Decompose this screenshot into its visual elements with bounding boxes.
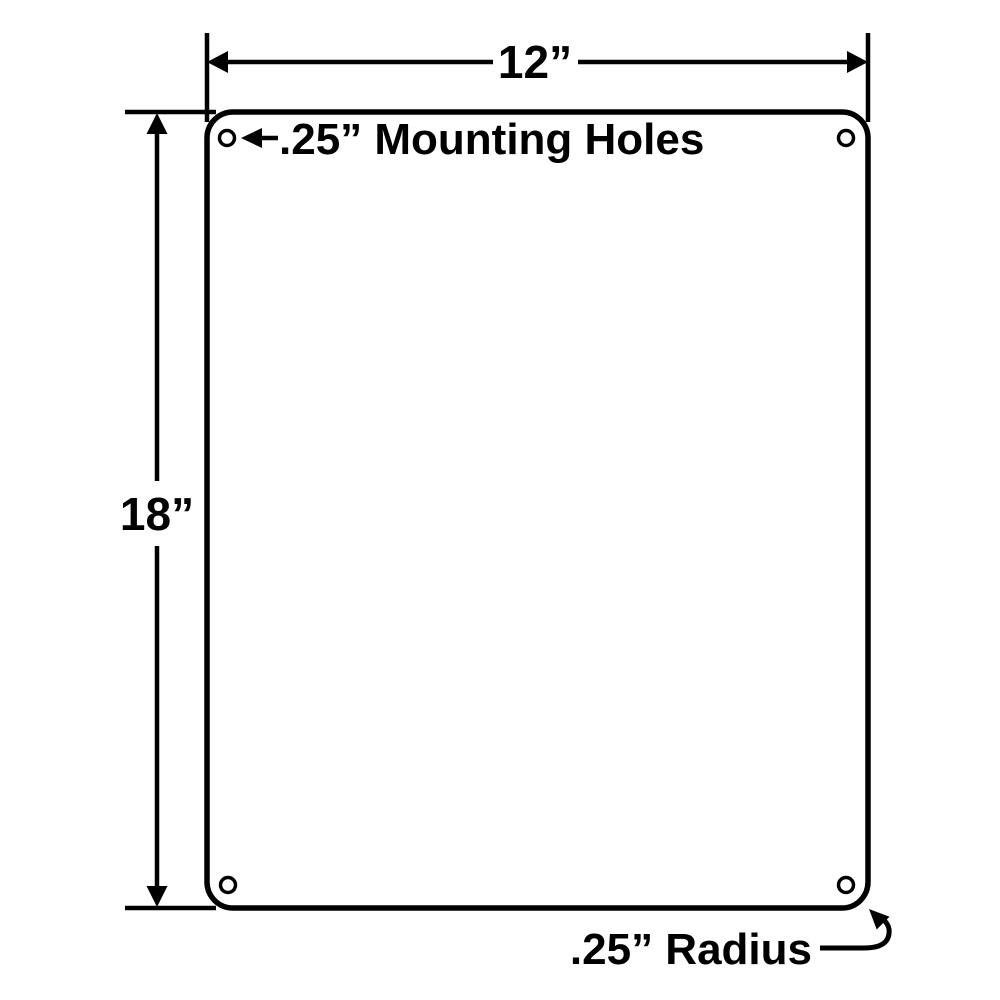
width-dimension-label: 12” [498,36,572,88]
width-dimension-arrowhead-right [847,51,868,73]
mounting-hole-top-right [839,131,854,146]
dimension-drawing-canvas: 12” 18” .25” Mounting Holes .25” Radius [0,0,1000,1000]
sign-plate-outline [207,112,868,908]
mounting-hole-bottom-left [221,878,236,893]
corner-radius-label: .25” Radius [570,925,812,974]
width-dimension-arrowhead-left [207,51,228,73]
mounting-holes-arrowhead [241,128,262,148]
mounting-holes-label: .25” Mounting Holes [279,115,704,164]
height-dimension-arrowhead-top [147,113,168,134]
height-dimension-arrowhead-bottom [147,886,168,907]
height-dimension-label: 18” [120,488,194,540]
mounting-hole-bottom-right [839,878,854,893]
diagram-stage: 12” 18” .25” Mounting Holes .25” Radius [0,0,1000,1000]
mounting-hole-top-left [220,131,235,146]
